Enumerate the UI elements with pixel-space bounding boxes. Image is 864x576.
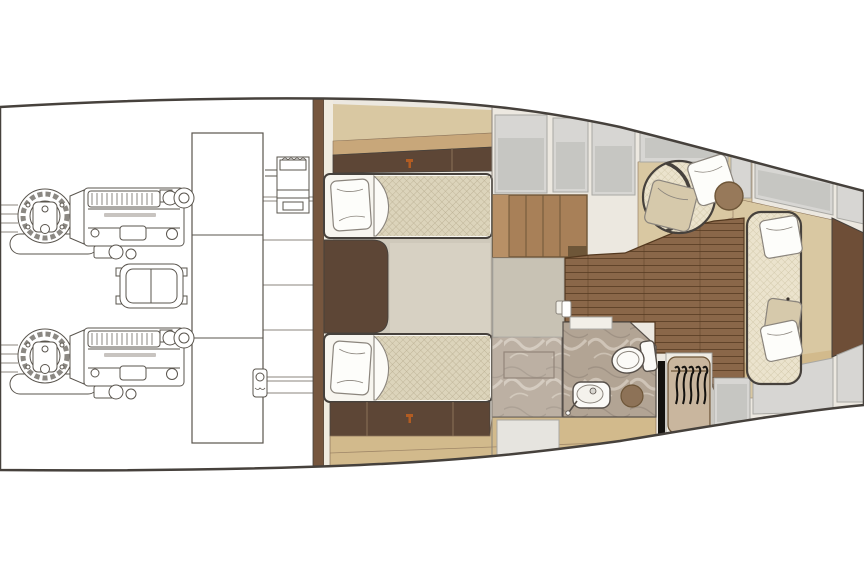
faucet xyxy=(590,388,596,394)
bed-starboard xyxy=(324,334,492,402)
marble-vanity xyxy=(492,336,562,417)
bed-port xyxy=(324,174,492,238)
floor-plan-canvas xyxy=(0,0,864,576)
bilge-pump xyxy=(253,369,267,397)
mattress xyxy=(374,336,490,400)
sofa-pillow xyxy=(760,319,804,362)
nightstand xyxy=(324,240,388,333)
pillow xyxy=(330,179,371,232)
door-hinge xyxy=(562,301,571,317)
fuel-tank xyxy=(192,133,263,443)
locker-door xyxy=(495,115,547,193)
engine-room-bulkhead xyxy=(313,98,324,466)
sofa xyxy=(747,212,803,384)
cabin-rug xyxy=(390,243,490,333)
companionway-steps xyxy=(493,195,587,258)
bathroom-door xyxy=(570,317,612,329)
entry-floor xyxy=(493,258,564,337)
stool xyxy=(621,385,643,407)
fitting-dot xyxy=(786,297,789,300)
bow-berth-panel xyxy=(832,218,864,357)
locker-door xyxy=(592,121,635,195)
mattress xyxy=(374,176,490,236)
muffler xyxy=(116,264,187,308)
sofa-pillow xyxy=(759,215,803,259)
lower-cabinet xyxy=(330,402,490,436)
side-table xyxy=(715,182,743,210)
locker-door xyxy=(553,118,588,192)
pillow xyxy=(330,341,372,396)
